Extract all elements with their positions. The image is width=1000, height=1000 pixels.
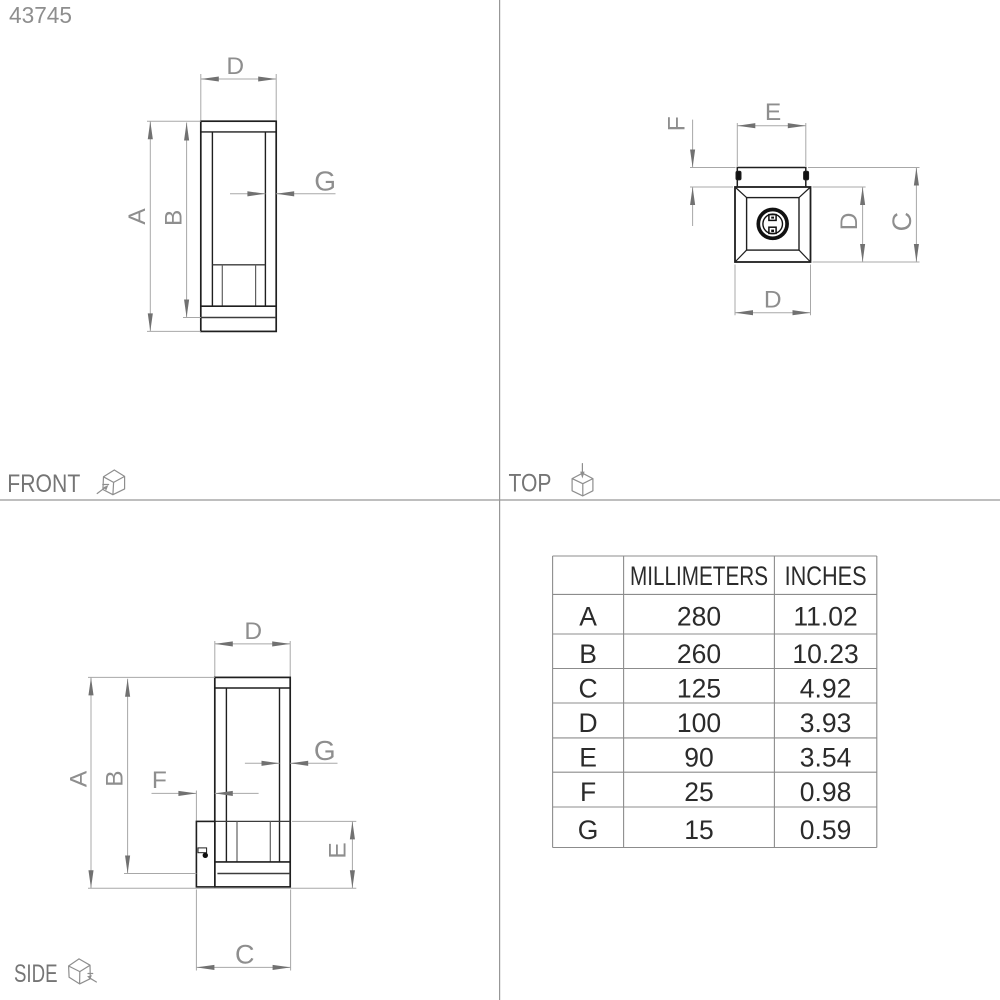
svg-text:FRONT: FRONT bbox=[7, 470, 80, 498]
svg-text:100: 100 bbox=[677, 708, 721, 738]
svg-text:G: G bbox=[314, 165, 336, 196]
svg-text:C: C bbox=[579, 673, 598, 703]
svg-text:11.02: 11.02 bbox=[793, 602, 857, 632]
svg-text:10.23: 10.23 bbox=[792, 639, 858, 669]
svg-text:F: F bbox=[664, 116, 691, 131]
svg-text:43745: 43745 bbox=[9, 2, 72, 28]
svg-text:G: G bbox=[314, 735, 336, 766]
svg-text:125: 125 bbox=[677, 673, 721, 703]
svg-text:15: 15 bbox=[684, 815, 713, 845]
svg-text:D: D bbox=[764, 287, 782, 314]
svg-text:A: A bbox=[579, 602, 597, 632]
svg-text:D: D bbox=[836, 213, 863, 231]
svg-text:E: E bbox=[765, 99, 781, 126]
svg-text:B: B bbox=[579, 639, 597, 669]
svg-text:E: E bbox=[579, 743, 597, 773]
svg-text:F: F bbox=[152, 767, 167, 794]
svg-text:25: 25 bbox=[684, 777, 713, 807]
svg-text:B: B bbox=[101, 770, 128, 786]
svg-text:D: D bbox=[579, 708, 598, 738]
svg-text:G: G bbox=[578, 815, 599, 845]
svg-text:F: F bbox=[580, 777, 596, 807]
svg-text:MILLIMETERS: MILLIMETERS bbox=[630, 561, 768, 591]
svg-text:A: A bbox=[124, 208, 151, 225]
svg-text:90: 90 bbox=[684, 743, 713, 773]
svg-text:0.59: 0.59 bbox=[800, 815, 852, 845]
svg-text:280: 280 bbox=[677, 602, 721, 632]
svg-text:D: D bbox=[226, 53, 244, 80]
svg-text:TOP: TOP bbox=[509, 470, 552, 498]
svg-text:0.98: 0.98 bbox=[800, 777, 852, 807]
svg-text:INCHES: INCHES bbox=[785, 561, 867, 591]
svg-text:4.92: 4.92 bbox=[800, 673, 852, 703]
svg-text:A: A bbox=[66, 770, 93, 787]
svg-text:3.93: 3.93 bbox=[800, 708, 852, 738]
svg-text:C: C bbox=[887, 212, 917, 232]
svg-text:260: 260 bbox=[677, 639, 721, 669]
svg-text:C: C bbox=[235, 939, 255, 969]
svg-text:3.54: 3.54 bbox=[800, 743, 852, 773]
svg-text:SIDE: SIDE bbox=[14, 960, 58, 988]
svg-text:B: B bbox=[160, 210, 187, 226]
svg-text:D: D bbox=[244, 618, 262, 645]
svg-text:E: E bbox=[325, 842, 352, 858]
